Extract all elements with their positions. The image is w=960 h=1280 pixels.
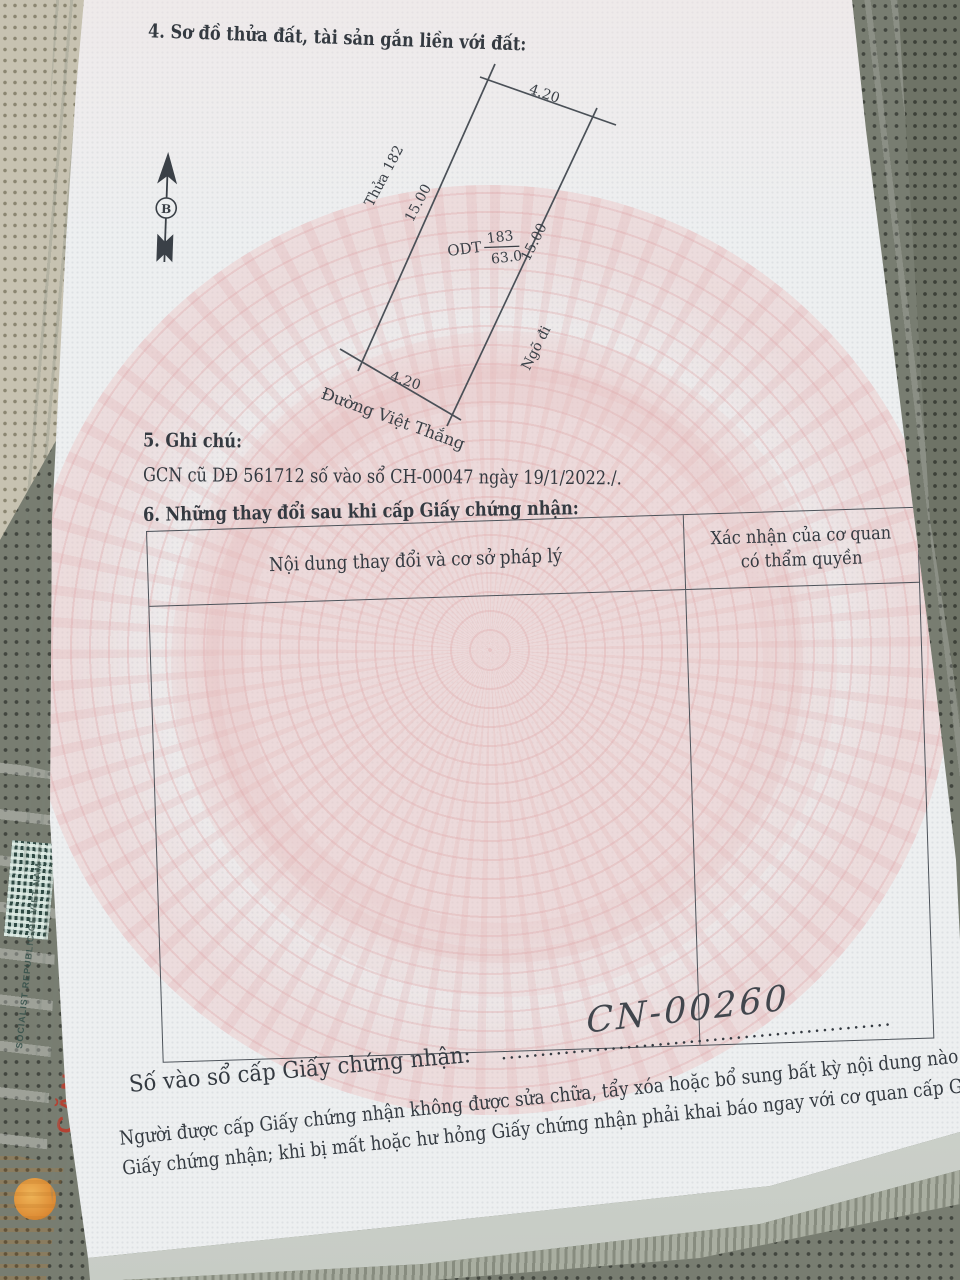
plot-diagram: 4.20 Thửa 182 15.00 ODT 183 63.0 15.00 N… xyxy=(300,58,630,458)
section5-note-text: GCN cũ DĐ 561712 số vào sổ CH-00047 ngày… xyxy=(143,464,706,490)
body-cell-confirmation xyxy=(686,583,933,1045)
changes-table-body-row xyxy=(149,583,933,1062)
dimension-bottom: 4.20 xyxy=(388,369,423,394)
road-label: Đường Việt Thắng xyxy=(319,384,468,454)
certificate-page: 4. Sơ đồ thửa đất, tài sản gắn liền với … xyxy=(0,0,960,1280)
section4-title: 4. Sơ đồ thửa đất, tài sản gắn liền với … xyxy=(148,20,594,58)
header-cell-confirmation: Xác nhận của cơ quan có thẩm quyền xyxy=(684,508,919,589)
alley-label: Ngõ đi xyxy=(519,323,555,373)
col2-header-line1: Xác nhận của cơ quan xyxy=(710,522,891,549)
north-arrow-icon: B xyxy=(136,149,197,281)
plot-label-group: ODT 183 63.0 xyxy=(446,227,524,273)
dimension-right: 15.00 xyxy=(518,221,550,264)
land-use-code: ODT xyxy=(446,238,482,260)
dimension-top: 4.20 xyxy=(527,82,562,107)
section5-title: 5. Ghi chú: xyxy=(143,429,260,452)
plot-number: 183 xyxy=(486,228,514,247)
dimension-left: 15.00 xyxy=(402,182,435,225)
photo-of-land-certificate: { "page": { "section4": { "title": "4. S… xyxy=(0,0,960,1280)
body-cell-content xyxy=(149,590,700,1062)
plot-area: 63.0 xyxy=(490,248,523,268)
neighbor-plot-label: Thửa 182 xyxy=(361,142,407,209)
north-letter: B xyxy=(161,202,172,216)
changes-table: Nội dung thay đổi và cơ sở pháp lý Xác n… xyxy=(146,507,934,1063)
col2-header-line2: có thẩm quyền xyxy=(741,548,863,573)
